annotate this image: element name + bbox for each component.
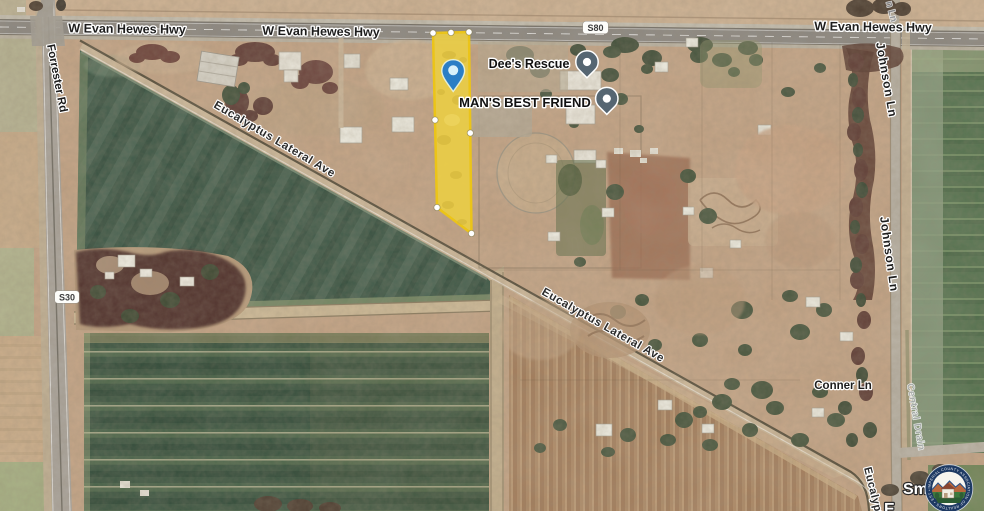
svg-text:Conner Ln: Conner Ln bbox=[814, 380, 872, 392]
svg-text:W Evan Hewes Hwy: W Evan Hewes Hwy bbox=[68, 21, 186, 36]
svg-text:E: E bbox=[884, 501, 895, 511]
svg-text:MAN'S BEST FRIEND: MAN'S BEST FRIEND bbox=[459, 95, 591, 110]
svg-text:W Evan Hewes Hwy: W Evan Hewes Hwy bbox=[262, 24, 380, 39]
svg-text:S80: S80 bbox=[587, 23, 603, 33]
svg-text:Sm: Sm bbox=[903, 481, 928, 498]
svg-text:S30: S30 bbox=[59, 293, 75, 303]
svg-text:W Evan Hewes Hwy: W Evan Hewes Hwy bbox=[814, 19, 932, 34]
svg-text:Dee's Rescue: Dee's Rescue bbox=[489, 57, 570, 71]
